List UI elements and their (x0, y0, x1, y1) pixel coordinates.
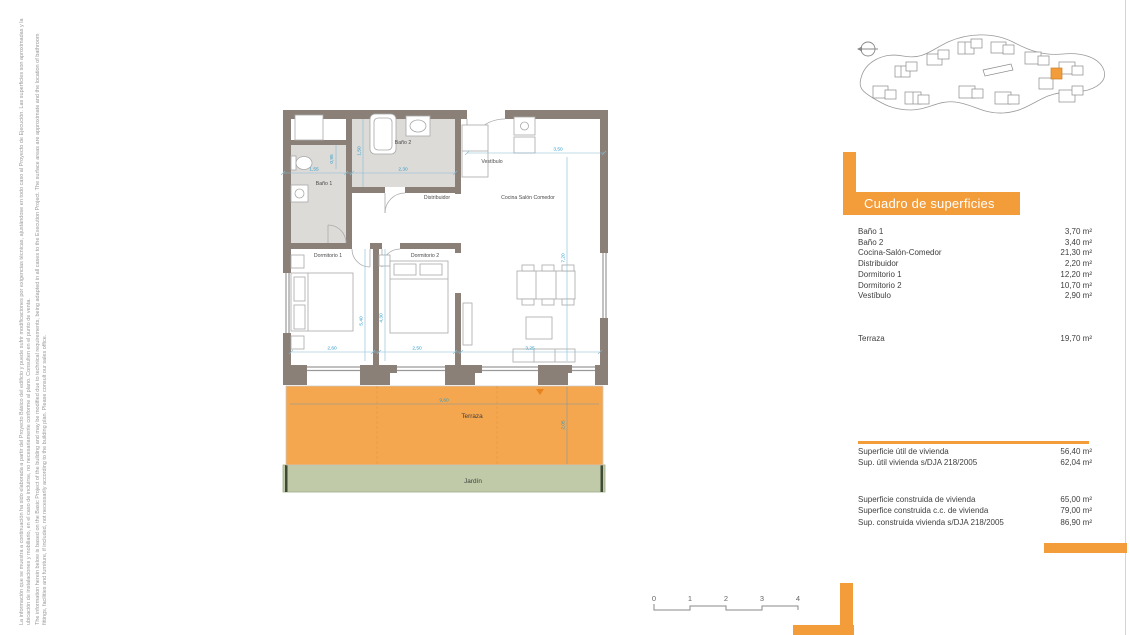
scale-label: 1 (688, 594, 692, 603)
table-row: Sup. útil vivienda s/DJA 218/2005 62,04 … (858, 457, 1092, 468)
surfaces-table-rows: Baño 1 3,70 m² Baño 2 3,40 m² Cocina-Sal… (858, 227, 1092, 302)
corner-accent-horizontal (793, 625, 854, 635)
scale-label: 0 (652, 594, 656, 603)
room-label-vestibule: Vestíbulo (481, 159, 502, 165)
dim-bed1-width: 2,60 (327, 346, 337, 352)
terrace-area: 9,60 Terraza 2,05 (286, 386, 603, 465)
row-value: 65,00 m² (1060, 494, 1092, 505)
room-label-bedroom2: Dormitorio 2 (411, 253, 439, 259)
table-row: Baño 2 3,40 m² (858, 238, 1092, 249)
row-value: 3,70 m² (1065, 227, 1092, 238)
orange-divider (858, 441, 1089, 444)
table-row: Vestíbulo 2,90 m² (858, 291, 1092, 302)
row-value: 19,70 m² (1060, 334, 1092, 345)
disclaimer-en: The information herein below is based on… (35, 15, 48, 625)
site-plan-map (843, 20, 1115, 132)
row-value: 12,20 m² (1060, 270, 1092, 281)
room-label-bath1: Baño 1 (316, 181, 333, 187)
row-name: Cocina-Salón-Comedor (858, 248, 942, 259)
table-row: Superficie útil de vivienda 56,40 m² (858, 446, 1092, 457)
row-name: Superficie útil de vivienda (858, 446, 949, 457)
dim-shower: 0,95 (329, 154, 335, 164)
room-label-kitchen-living: Cocina Salón Comedor (501, 195, 555, 201)
garden-label: Jardín (464, 478, 482, 485)
disclaimer-es: La información que se muestra a continua… (19, 15, 32, 625)
room-label-distributor: Distribuidor (424, 195, 451, 201)
table-row: Baño 1 3,70 m² (858, 227, 1092, 238)
row-value: 79,00 m² (1060, 505, 1092, 516)
row-value: 10,70 m² (1060, 281, 1092, 292)
table-row: Superficie construida de vivienda 65,00 … (858, 494, 1092, 505)
row-name: Sup. construida vivienda s/DJA 218/2005 (858, 517, 1004, 528)
table-row: Superfice construida c.c. de vivienda 79… (858, 505, 1092, 516)
dim-hall-width: 3,50 (553, 147, 563, 153)
row-name: Superficie construida de vivienda (858, 494, 975, 505)
terrace-width-dim: 9,60 (439, 398, 449, 404)
highlighted-unit (1051, 68, 1062, 79)
bath2-floor (352, 110, 455, 187)
row-name: Baño 1 (858, 227, 883, 238)
useful-area-rows: Superficie útil de vivienda 56,40 m² Sup… (858, 446, 1092, 469)
row-name: Vestíbulo (858, 291, 891, 302)
row-name: Superfice construida c.c. de vivienda (858, 505, 988, 516)
dim-bath2-width: 2,30 (398, 167, 408, 173)
table-row: Cocina-Salón-Comedor 21,30 m² (858, 248, 1092, 259)
table-row: Dormitorio 1 12,20 m² (858, 270, 1092, 281)
row-value: 2,90 m² (1065, 291, 1092, 302)
table-row: Sup. construida vivienda s/DJA 218/2005 … (858, 517, 1092, 528)
floor-plan-drawing: Jardín 9,60 Terraza 2,05 (270, 103, 612, 525)
bottom-accent-bar (1044, 543, 1127, 553)
row-name: Dormitorio 2 (858, 281, 902, 292)
dim-bed2-width: 2,50 (412, 346, 422, 352)
dim-bed1-depth: 5,40 (359, 316, 365, 326)
surfaces-table-title: Cuadro de superficies (864, 196, 995, 211)
scale-bar: 0 1 2 3 4 (646, 592, 810, 618)
terrace-row: Terraza 19,70 m² (858, 334, 1092, 345)
terrace-depth-dim: 2,05 (561, 420, 567, 430)
floor-plan-sheet: La información que se muestra a continua… (0, 0, 1130, 635)
scale-label: 3 (760, 594, 764, 603)
scale-label: 4 (796, 594, 800, 603)
room-label-bath2: Baño 2 (395, 140, 412, 146)
terrace-label: Terraza (461, 413, 483, 420)
room-label-bedroom1: Dormitorio 1 (314, 253, 342, 259)
row-value: 62,04 m² (1060, 457, 1092, 468)
row-value: 56,40 m² (1060, 446, 1092, 457)
row-value: 21,30 m² (1060, 248, 1092, 259)
table-row: Distribuidor 2,20 m² (858, 259, 1092, 270)
page-edge-rule (1125, 0, 1126, 635)
row-name: Dormitorio 1 (858, 270, 902, 281)
row-name: Terraza (858, 334, 885, 345)
dim-living-depth: 7,20 (561, 253, 567, 263)
table-row: Dormitorio 2 10,70 m² (858, 281, 1092, 292)
row-name: Baño 2 (858, 238, 883, 249)
surfaces-table-header: Cuadro de superficies (856, 192, 1020, 215)
row-name: Sup. útil vivienda s/DJA 218/2005 (858, 457, 977, 468)
row-value: 86,90 m² (1060, 517, 1092, 528)
disclaimer-text: La información que se muestra a continua… (19, 15, 63, 625)
dim-bath2-depth: 1,50 (357, 146, 363, 156)
scale-label: 2 (724, 594, 728, 603)
dim-bath1-width: 1,55 (309, 167, 319, 173)
dim-living-width: 3,25 (525, 346, 535, 352)
header-accent-bar (843, 152, 856, 215)
row-name: Distribuidor (858, 259, 898, 270)
row-value: 2,20 m² (1065, 259, 1092, 270)
north-indicator-icon (857, 42, 878, 56)
garden-area: Jardín (283, 465, 605, 492)
dim-bed2-depth: 4,30 (379, 313, 385, 323)
row-value: 3,40 m² (1065, 238, 1092, 249)
built-area-rows: Superficie construida de vivienda 65,00 … (858, 494, 1092, 528)
table-row: Terraza 19,70 m² (858, 334, 1092, 345)
